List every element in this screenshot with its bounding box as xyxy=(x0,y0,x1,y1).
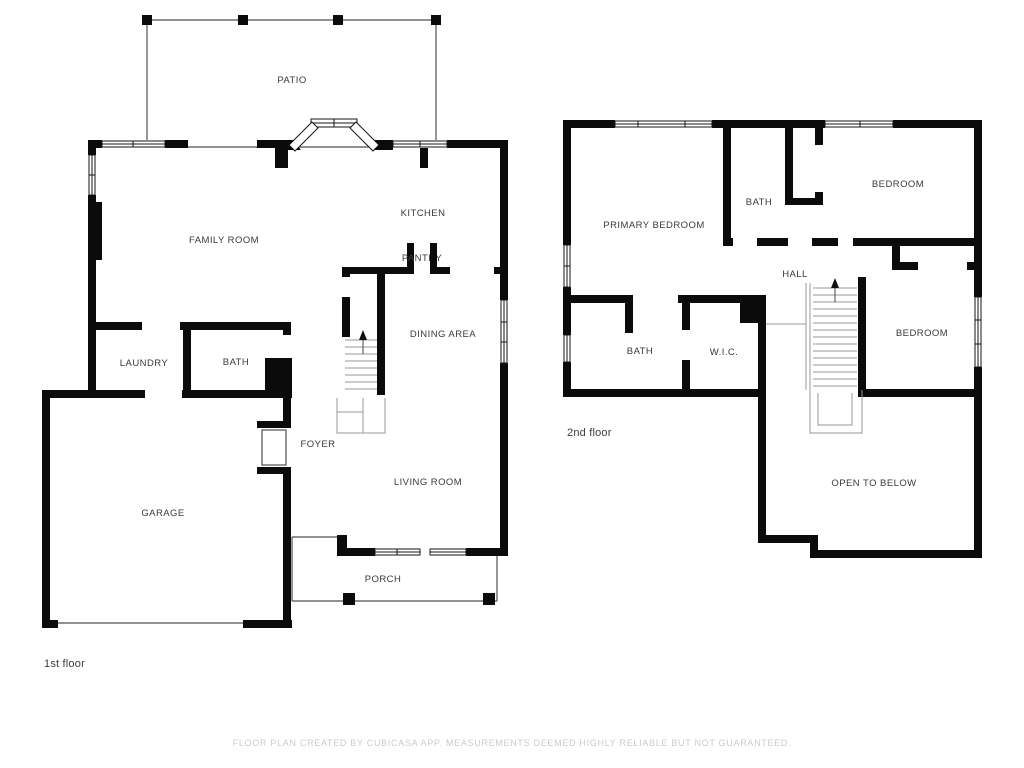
room-label-bath-1f: BATH xyxy=(223,357,249,368)
floor-plan-page: PATIO FAMILY ROOM KITCHEN PANTRY DINING … xyxy=(0,0,1024,768)
room-label-bath-2f: BATH xyxy=(627,346,653,357)
floor2-stair-up-arrow xyxy=(831,278,839,302)
room-label-living-room: LIVING ROOM xyxy=(394,477,462,488)
floor2-labels: PRIMARY BEDROOM BATH BEDROOM HALL BATH W… xyxy=(603,179,948,489)
room-label-hall: HALL xyxy=(782,269,808,280)
room-label-wic: W.I.C. xyxy=(710,347,739,358)
floor1-walls xyxy=(42,15,508,628)
room-label-patio: PATIO xyxy=(277,75,306,86)
room-label-kitchen: KITCHEN xyxy=(401,208,446,219)
room-label-bath-upper: BATH xyxy=(746,197,772,208)
footer-disclaimer: FLOOR PLAN CREATED BY CUBICASA APP. MEAS… xyxy=(233,738,792,748)
room-label-porch: PORCH xyxy=(365,574,402,585)
room-label-dining-area: DINING AREA xyxy=(410,329,476,340)
room-label-bedroom-upper: BEDROOM xyxy=(872,179,924,190)
room-label-family-room: FAMILY ROOM xyxy=(189,235,259,246)
porch-outline xyxy=(58,430,497,623)
floor2-caption: 2nd floor xyxy=(567,427,612,439)
floor2-plan: PRIMARY BEDROOM BATH BEDROOM HALL BATH W… xyxy=(563,120,982,558)
pantry-wall-overlay xyxy=(430,243,437,274)
floor2-stairs xyxy=(766,283,862,433)
floor1-plan: PATIO FAMILY ROOM KITCHEN PANTRY DINING … xyxy=(42,15,508,670)
floorplan-canvas: PATIO FAMILY ROOM KITCHEN PANTRY DINING … xyxy=(0,0,1024,768)
floor1-caption: 1st floor xyxy=(44,658,85,670)
room-label-open-to-below: OPEN TO BELOW xyxy=(831,478,916,489)
room-label-bedroom-mid: BEDROOM xyxy=(896,328,948,339)
room-label-foyer: FOYER xyxy=(301,439,336,450)
room-label-primary-bedroom: PRIMARY BEDROOM xyxy=(603,220,704,231)
room-label-garage: GARAGE xyxy=(141,508,184,519)
room-label-laundry: LAUNDRY xyxy=(120,358,169,369)
floor1-stair-up-arrow xyxy=(359,330,367,354)
